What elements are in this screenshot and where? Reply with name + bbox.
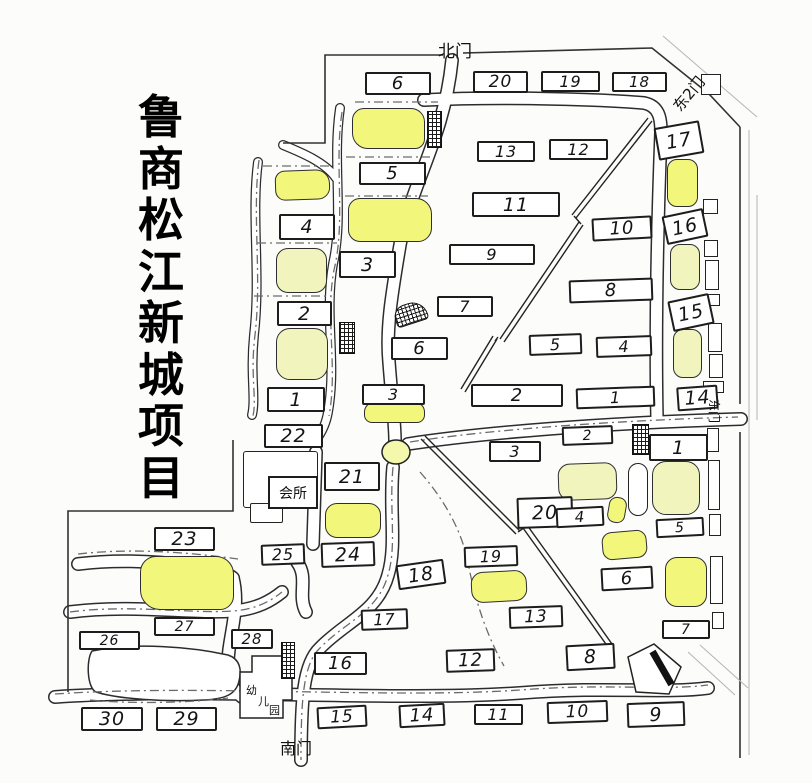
hatched-structure	[632, 424, 649, 455]
building-box-1: 1	[649, 434, 708, 461]
building-box-24: 24	[321, 541, 376, 568]
building-box-1: 1	[267, 387, 325, 412]
building-box-4: 4	[556, 506, 605, 528]
small-unit	[709, 354, 723, 378]
building-box-17: 17	[653, 120, 704, 160]
building-box-11: 11	[472, 192, 560, 217]
clubhouse-building: 会所	[268, 476, 318, 509]
yellow-building	[470, 570, 528, 604]
hatched-structure	[427, 111, 442, 148]
building-box-9: 9	[627, 701, 686, 728]
building-box-18: 18	[395, 559, 446, 590]
building-box-1: 1	[576, 386, 656, 410]
building-box-25: 25	[261, 543, 306, 566]
building-box-9: 9	[449, 244, 535, 265]
building-box-3: 3	[362, 384, 425, 405]
small-unit	[704, 240, 718, 257]
yellow-building	[348, 198, 432, 242]
building-box-29: 29	[156, 707, 217, 731]
building-box-6: 6	[600, 566, 653, 592]
small-unit	[712, 612, 724, 629]
building-box-21: 21	[324, 462, 380, 491]
building-box-3: 3	[489, 441, 541, 462]
building-box-5: 5	[656, 517, 705, 538]
building-box-30: 30	[81, 707, 143, 731]
hatched-structure	[281, 642, 295, 679]
yellow-building	[665, 557, 707, 607]
building-box-8: 8	[565, 643, 615, 672]
building-box-22: 22	[264, 424, 323, 448]
yellow-building	[670, 244, 700, 290]
building-box-28: 28	[231, 629, 273, 649]
building-box-12: 12	[446, 648, 496, 673]
small-unit	[708, 460, 720, 510]
building-box-19: 19	[541, 71, 600, 92]
building-box-2: 2	[562, 425, 614, 446]
building-box-23: 23	[154, 527, 215, 551]
yellow-building	[325, 503, 381, 538]
yellow-building	[673, 329, 702, 378]
small-unit	[710, 556, 723, 604]
building-box-7: 7	[437, 296, 493, 317]
site-plan-map: 6543212019181312111098765432117161514222…	[0, 0, 812, 783]
building-box-15: 15	[316, 705, 367, 730]
yellow-building	[652, 461, 700, 515]
building-box-13: 13	[477, 141, 535, 162]
building-box-3: 3	[339, 251, 396, 278]
building-box-11: 11	[474, 704, 523, 725]
building-box-17: 17	[361, 608, 409, 631]
small-unit	[709, 514, 721, 536]
building-box-4: 4	[596, 335, 653, 358]
building-box-16: 16	[661, 208, 708, 245]
building-box-19: 19	[464, 545, 519, 568]
small-unit	[708, 323, 722, 352]
yellow-building	[276, 328, 328, 380]
building-box-16: 16	[314, 652, 367, 675]
building-box-5: 5	[359, 162, 426, 185]
building-box-2: 2	[277, 301, 332, 326]
building-box-13: 13	[509, 605, 564, 629]
north-gate-label: 北门	[438, 37, 498, 59]
building-box-6: 6	[391, 337, 448, 360]
building-box-10: 10	[591, 215, 652, 241]
yellow-building	[601, 529, 648, 561]
hatched-structure	[392, 298, 430, 328]
building-box-27: 27	[154, 617, 215, 636]
building-box-7: 7	[662, 620, 710, 639]
building-box-2: 2	[471, 384, 563, 407]
building-box-18: 18	[612, 72, 667, 92]
building-box-14: 14	[398, 703, 445, 728]
yellow-building	[557, 462, 617, 501]
building-box-8: 8	[569, 278, 654, 304]
yellow-building	[352, 108, 425, 149]
kindergarten-label-char1: 幼	[246, 682, 257, 698]
building-box-12: 12	[549, 139, 608, 160]
yellow-building	[276, 248, 327, 293]
east-gate-label: 东门	[701, 399, 723, 459]
yellow-building	[606, 496, 628, 525]
building-box-5: 5	[529, 333, 583, 356]
building-box-6: 6	[365, 72, 431, 95]
yellow-building	[140, 556, 234, 610]
yellow-building	[274, 169, 330, 201]
kindergarten-label-char2: 儿	[258, 693, 269, 709]
white-building	[628, 463, 648, 516]
building-box-20: 20	[473, 71, 528, 93]
small-unit	[705, 260, 719, 290]
small-unit	[703, 199, 718, 214]
building-box-10: 10	[547, 700, 609, 724]
south-gate-label: 南门	[280, 735, 340, 757]
yellow-building	[667, 159, 698, 207]
building-box-4: 4	[279, 214, 335, 240]
hatched-structure	[339, 322, 355, 354]
building-box-26: 26	[79, 631, 140, 650]
project-title: 鲁 商 松 江 新 城 项 目	[116, 92, 206, 504]
kindergarten-label-char3: 园	[269, 702, 280, 718]
yellow-building	[364, 402, 425, 423]
